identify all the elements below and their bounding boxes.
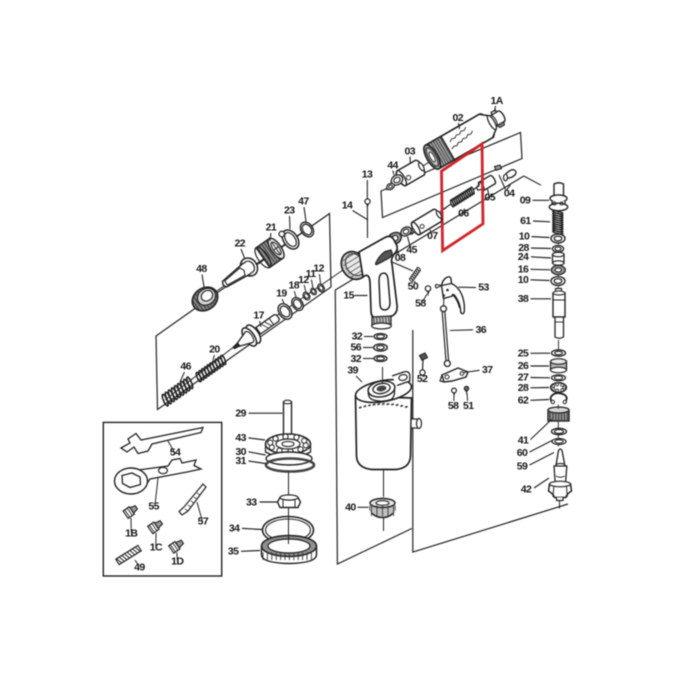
svg-text:29: 29	[235, 408, 246, 420]
svg-text:31: 31	[235, 455, 246, 467]
svg-text:33: 33	[246, 496, 257, 508]
svg-text:1B: 1B	[125, 528, 138, 540]
svg-text:23: 23	[284, 205, 295, 217]
svg-text:55: 55	[148, 501, 159, 513]
svg-text:05: 05	[484, 192, 495, 204]
svg-text:12: 12	[313, 263, 324, 275]
svg-text:58: 58	[415, 298, 426, 310]
svg-text:21: 21	[266, 222, 277, 234]
svg-text:47: 47	[298, 196, 309, 208]
svg-text:1D: 1D	[171, 556, 184, 568]
svg-text:38: 38	[518, 293, 529, 305]
svg-text:20: 20	[209, 344, 220, 356]
svg-text:52: 52	[417, 373, 428, 385]
svg-text:42: 42	[521, 484, 532, 496]
svg-text:07: 07	[427, 230, 438, 242]
svg-text:41: 41	[518, 435, 529, 447]
svg-text:14: 14	[342, 200, 353, 212]
svg-text:57: 57	[198, 516, 209, 528]
svg-text:22: 22	[234, 238, 245, 250]
svg-text:32: 32	[351, 353, 362, 365]
svg-text:37: 37	[482, 364, 493, 376]
svg-text:62: 62	[518, 395, 529, 407]
svg-text:15: 15	[343, 290, 354, 302]
svg-text:46: 46	[180, 361, 191, 373]
svg-text:1A: 1A	[490, 95, 503, 107]
svg-text:39: 39	[347, 365, 358, 377]
svg-text:10: 10	[518, 274, 529, 286]
svg-text:49: 49	[134, 562, 145, 574]
svg-text:43: 43	[235, 432, 246, 444]
svg-text:09: 09	[520, 195, 531, 207]
svg-text:44: 44	[387, 160, 398, 172]
svg-text:48: 48	[196, 263, 207, 275]
svg-text:51: 51	[463, 400, 474, 412]
svg-text:19: 19	[276, 288, 287, 300]
svg-text:56: 56	[351, 342, 362, 354]
svg-text:45: 45	[406, 244, 417, 256]
svg-text:17: 17	[253, 310, 264, 322]
svg-text:13: 13	[362, 169, 373, 181]
svg-text:28: 28	[518, 382, 529, 394]
svg-text:40: 40	[345, 502, 356, 514]
svg-text:35: 35	[228, 546, 239, 558]
svg-text:02: 02	[452, 112, 463, 124]
svg-text:54: 54	[170, 447, 181, 459]
svg-text:34: 34	[229, 523, 240, 535]
svg-text:08: 08	[395, 252, 406, 264]
svg-text:50: 50	[408, 281, 419, 293]
svg-text:61: 61	[520, 215, 531, 227]
svg-text:24: 24	[518, 251, 529, 263]
svg-text:53: 53	[478, 282, 489, 294]
svg-text:26: 26	[518, 360, 529, 372]
svg-text:59: 59	[517, 461, 528, 473]
svg-text:60: 60	[517, 447, 528, 459]
svg-text:36: 36	[476, 324, 487, 336]
svg-text:10: 10	[519, 231, 530, 243]
svg-text:03: 03	[404, 146, 415, 158]
svg-text:25: 25	[518, 348, 529, 360]
svg-text:58: 58	[448, 400, 459, 412]
